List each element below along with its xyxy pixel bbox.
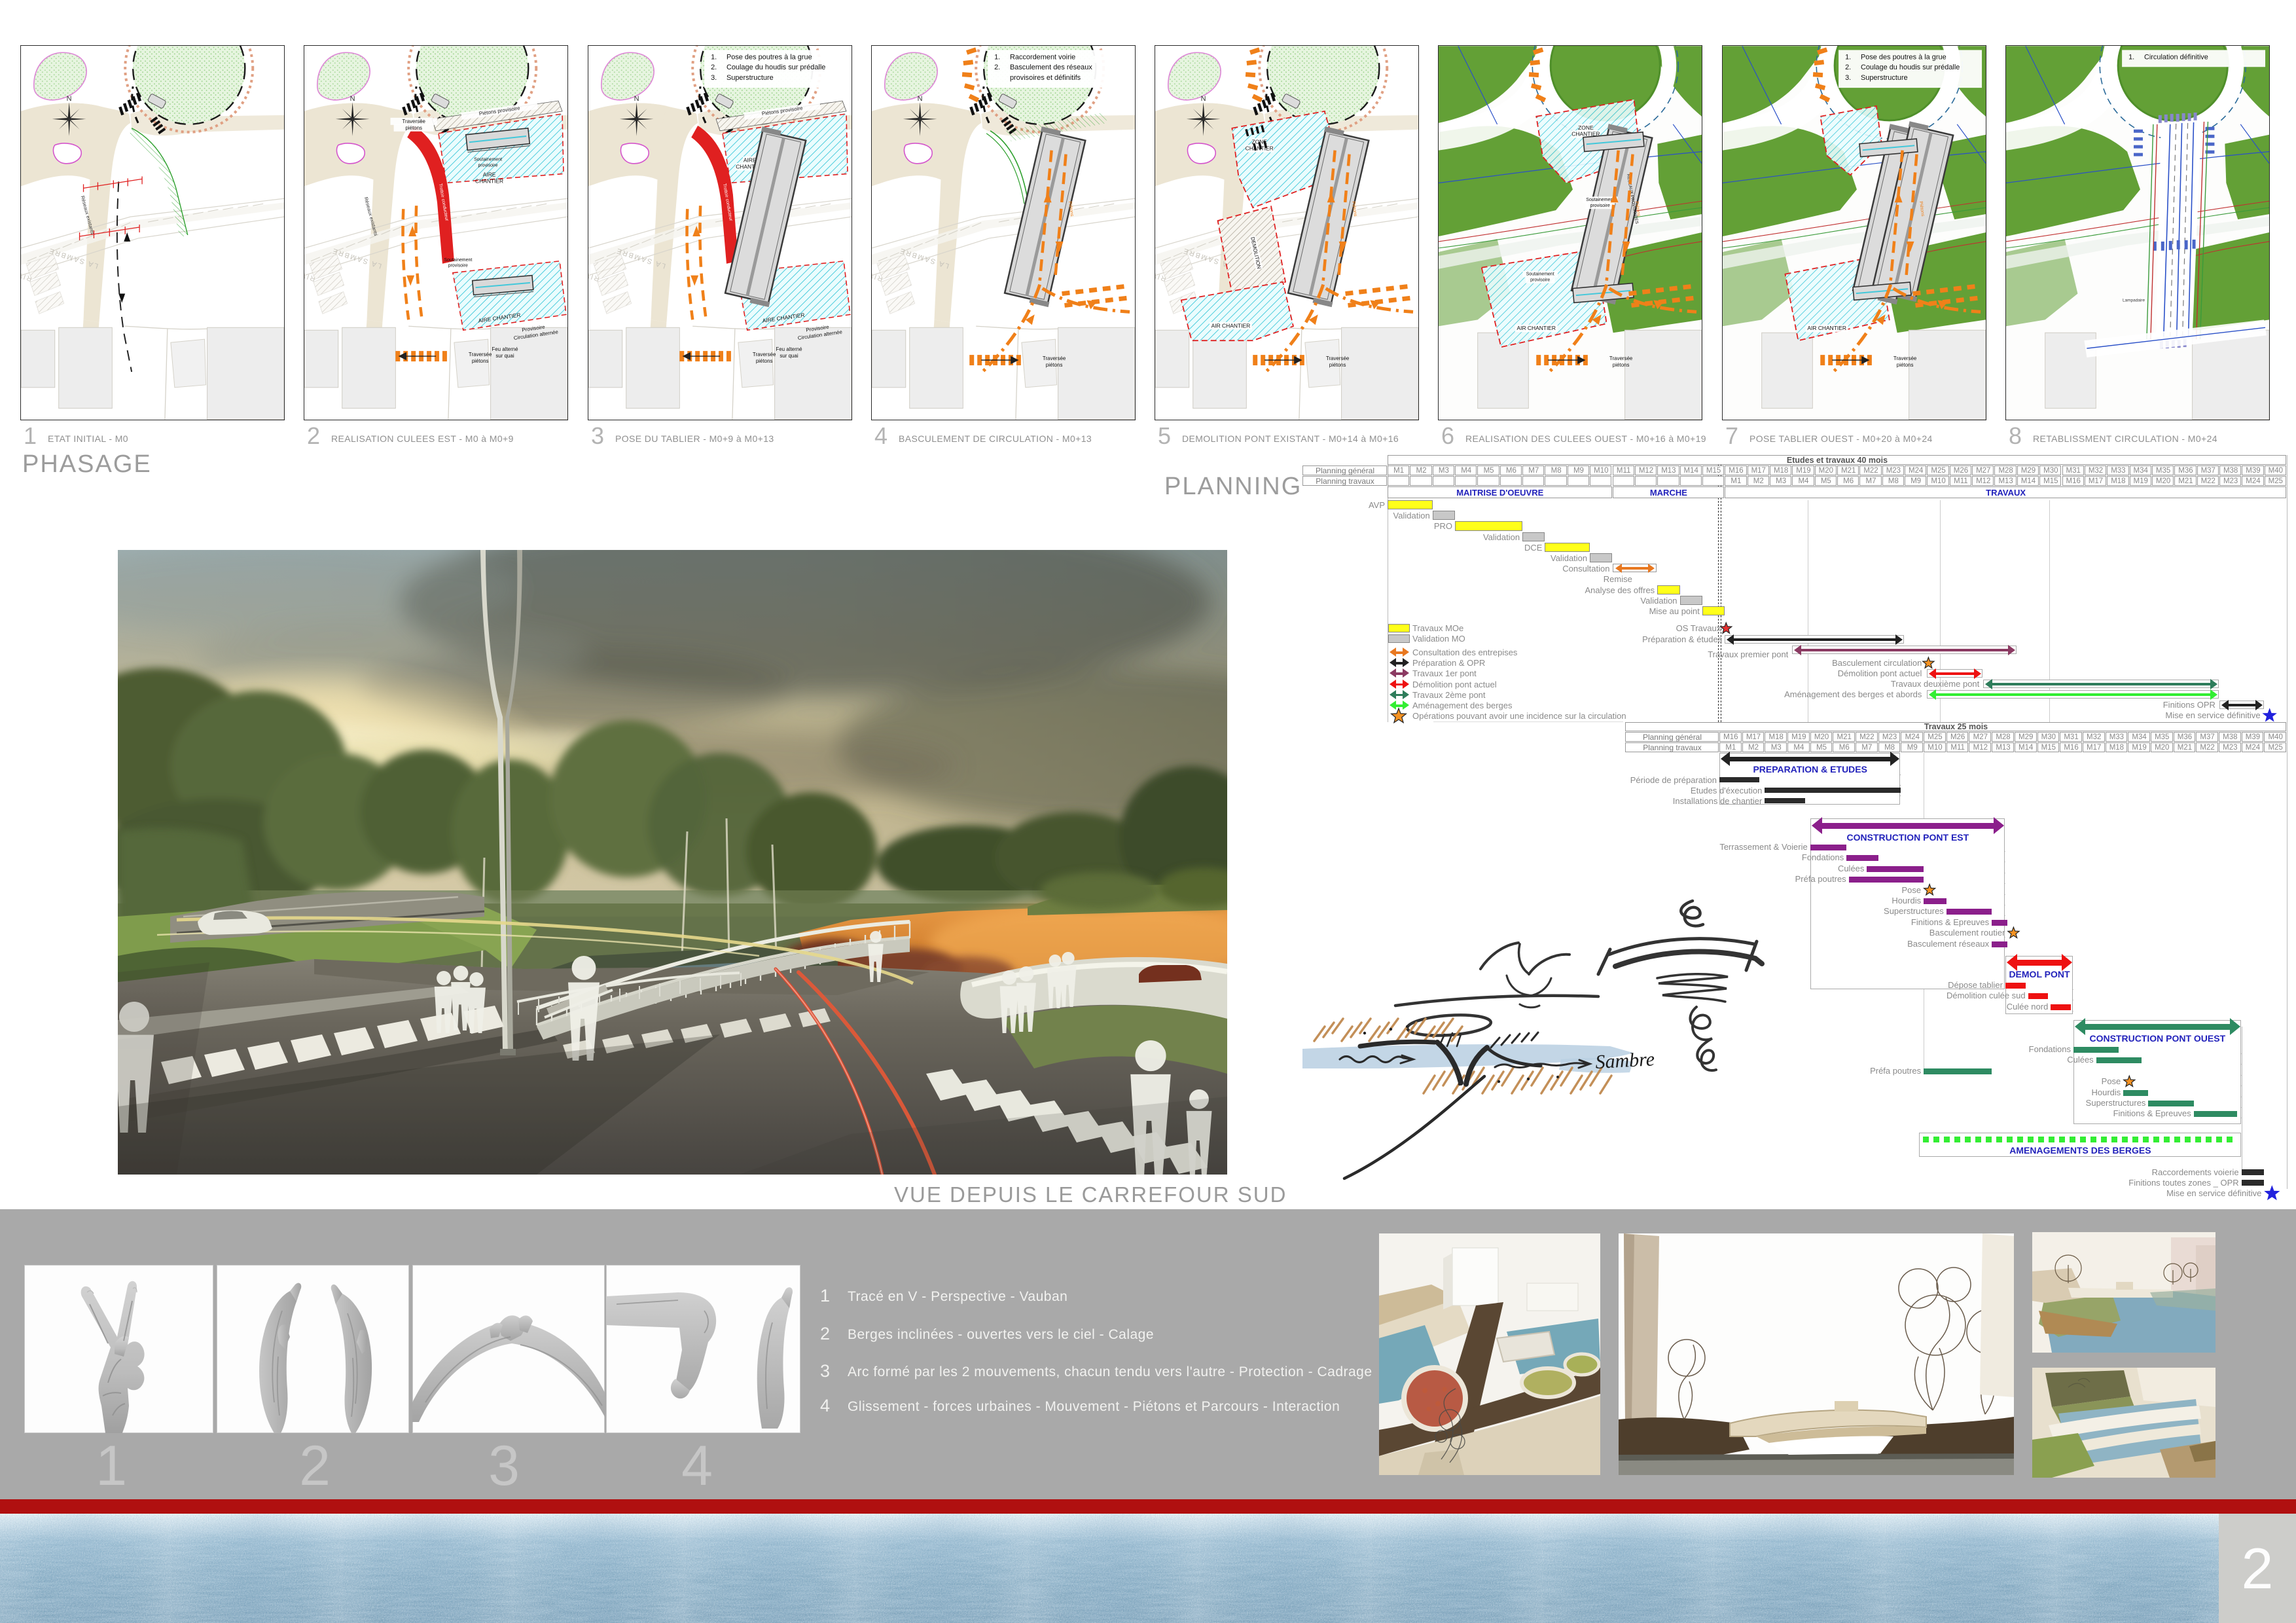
svg-text:Raccordement voirie: Raccordement voirie [1010, 53, 1075, 61]
svg-text:piétons: piétons [1329, 362, 1346, 368]
svg-text:Traversée: Traversée [1043, 356, 1066, 361]
svg-text:AIR CHANTIER: AIR CHANTIER [1211, 322, 1251, 329]
svg-text:Traversée: Traversée [1326, 356, 1350, 361]
svg-text:Basculement des réseaux: Basculement des réseaux [1010, 64, 1092, 71]
svg-text:provisoire: provisoire [478, 164, 498, 168]
svg-text:1.: 1. [1845, 53, 1851, 61]
svg-text:Pose des poutres à la grue: Pose des poutres à la grue [1861, 53, 1946, 61]
svg-text:piétons: piétons [405, 125, 422, 131]
svg-text:Superstructure: Superstructure [1861, 74, 1908, 82]
svg-text:Traversée: Traversée [402, 119, 425, 124]
svg-text:Sambre: Sambre [1595, 1048, 1655, 1073]
svg-text:Feu alterné: Feu alterné [776, 346, 802, 352]
svg-text:provisoires et définitifs: provisoires et définitifs [1010, 74, 1081, 82]
svg-text:CHANTIER: CHANTIER [475, 177, 503, 184]
svg-text:piétons: piétons [1897, 362, 1914, 368]
svg-text:provisoire: provisoire [448, 264, 468, 268]
svg-text:sur quai: sur quai [495, 353, 514, 359]
svg-text:Traversée: Traversée [1893, 356, 1917, 361]
svg-text:1.: 1. [2128, 53, 2134, 61]
svg-text:provisoire: provisoire [1530, 278, 1550, 283]
svg-text:ZONE: ZONE [1578, 124, 1594, 131]
svg-text:1.: 1. [711, 53, 717, 61]
svg-text:provisoire: provisoire [1590, 204, 1610, 208]
svg-text:2.: 2. [994, 64, 1000, 71]
svg-text:piétons: piétons [1046, 362, 1063, 368]
svg-text:sur quai: sur quai [780, 353, 798, 359]
svg-text:piétons: piétons [756, 358, 773, 364]
svg-text:Traversée: Traversée [753, 352, 776, 357]
svg-text:Feu alterné: Feu alterné [492, 346, 518, 352]
svg-text:3.: 3. [1845, 74, 1851, 82]
svg-text:Coulage du houdis sur prédalle: Coulage du houdis sur prédalle [726, 64, 825, 71]
svg-text:AIR CHANTIER: AIR CHANTIER [1807, 325, 1846, 331]
svg-text:Circulation définitive: Circulation définitive [2144, 53, 2208, 61]
svg-text:Soutainement: Soutainement [1526, 272, 1554, 277]
svg-text:Pose des poutres à la grue: Pose des poutres à la grue [726, 53, 812, 61]
svg-text:2.: 2. [711, 64, 717, 71]
svg-text:AIRE: AIRE [483, 171, 496, 177]
svg-text:Coulage du houdis sur prédalle: Coulage du houdis sur prédalle [1861, 64, 1960, 71]
svg-text:Traversée: Traversée [469, 352, 492, 357]
svg-text:Soutainement: Soutainement [1586, 198, 1614, 202]
svg-text:Soutainement: Soutainement [474, 158, 502, 162]
svg-text:Superstructure: Superstructure [726, 74, 774, 82]
svg-text:Soutainement: Soutainement [444, 258, 472, 263]
svg-text:Traversée: Traversée [1609, 356, 1633, 361]
svg-text:AIR CHANTIER: AIR CHANTIER [1516, 325, 1556, 331]
svg-text:piétons: piétons [472, 358, 489, 364]
svg-text:2.: 2. [1845, 64, 1851, 71]
svg-text:1.: 1. [994, 53, 1000, 61]
svg-text:piétons: piétons [1613, 362, 1630, 368]
svg-text:Lampadaire: Lampadaire [2123, 298, 2145, 302]
svg-text:3.: 3. [711, 74, 717, 82]
